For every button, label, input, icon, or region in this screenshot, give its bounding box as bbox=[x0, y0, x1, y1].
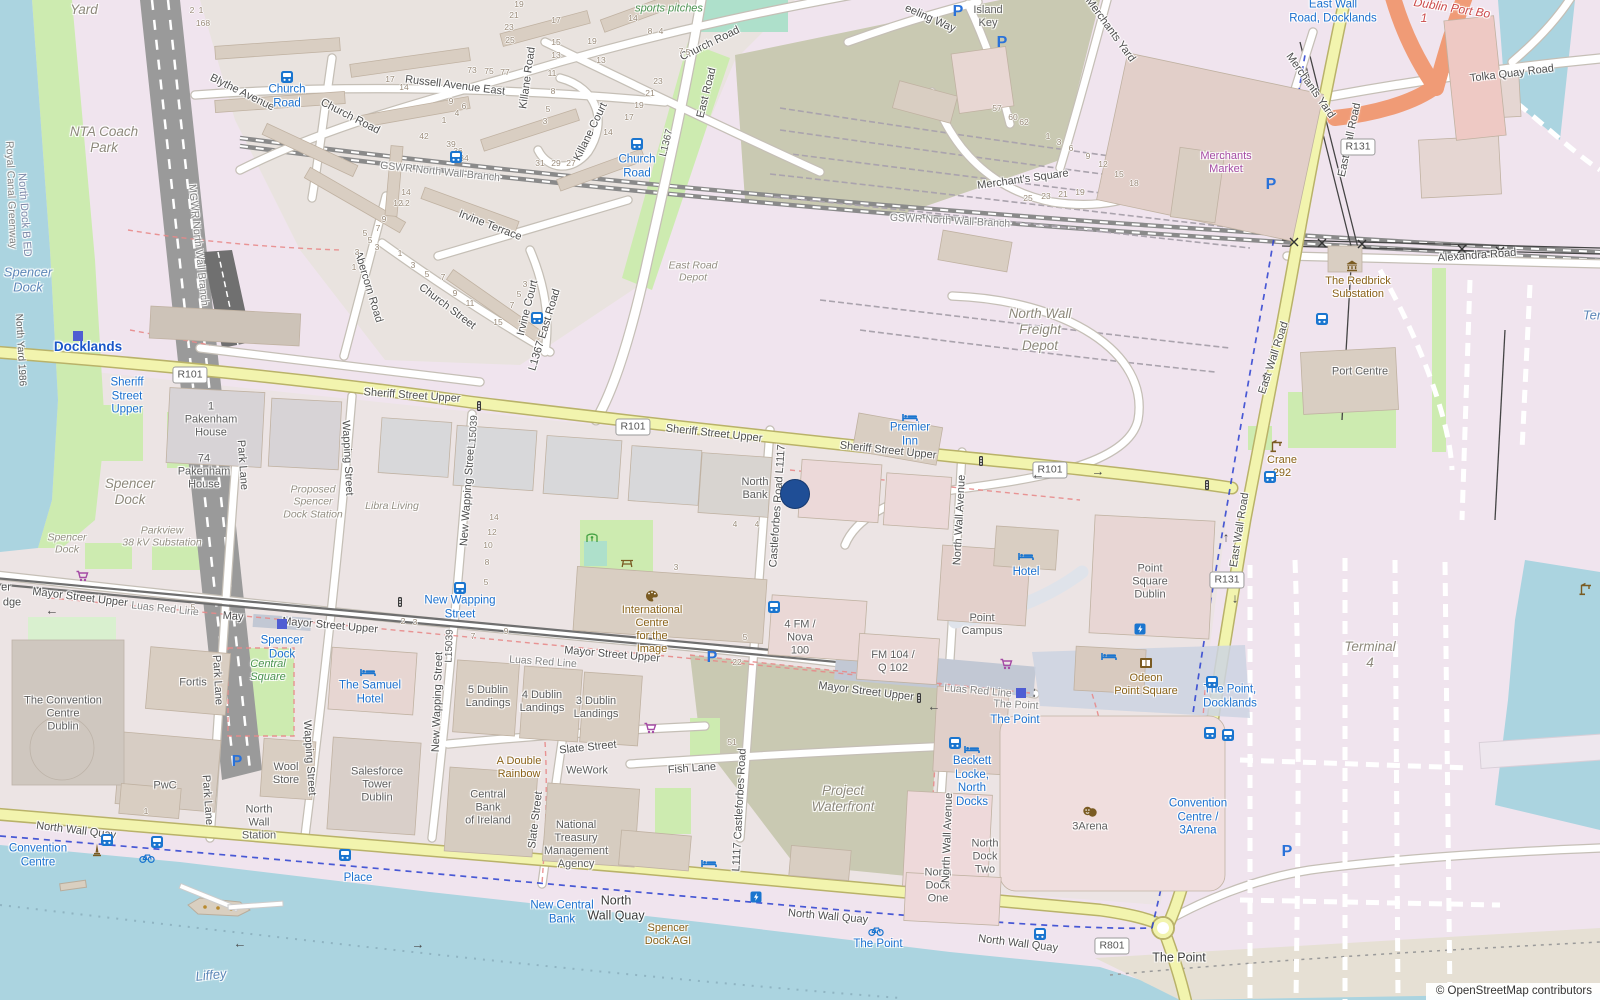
map-canvas[interactable]: YardRoyal Canal GreenwayNorth Dock B EDM… bbox=[0, 0, 1600, 1000]
attribution-text[interactable]: © OpenStreetMap contributors bbox=[1436, 985, 1592, 997]
location-marker[interactable] bbox=[780, 479, 810, 509]
attribution[interactable]: © OpenStreetMap contributors bbox=[1426, 983, 1600, 1000]
